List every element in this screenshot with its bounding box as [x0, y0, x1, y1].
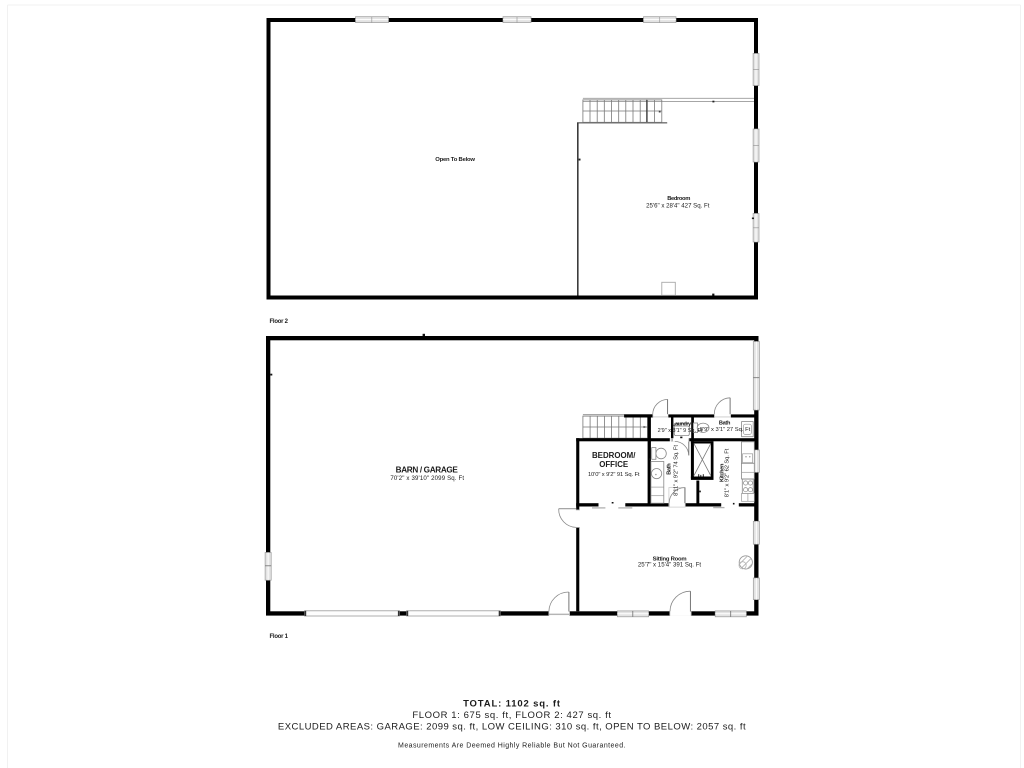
- svg-text:25'6" x 28'4" 427 Sq. Ft: 25'6" x 28'4" 427 Sq. Ft: [646, 203, 710, 210]
- svg-text:BARN / GARAGE: BARN / GARAGE: [396, 466, 459, 475]
- svg-text:70'2" x 39'10" 2099 Sq. Ft: 70'2" x 39'10" 2099 Sq. Ft: [390, 475, 464, 482]
- svg-text:Bath: Bath: [719, 421, 731, 427]
- svg-text:2'9" x 3'1" 9 Sq. Ft: 2'9" x 3'1" 9 Sq. Ft: [658, 428, 703, 434]
- svg-text:10'0" x 9'2" 91 Sq. Ft: 10'0" x 9'2" 91 Sq. Ft: [588, 472, 640, 478]
- svg-text:FLOOR 1: 675 sq. ft, FLOOR 2:: FLOOR 1: 675 sq. ft, FLOOR 2: 427 sq. ft: [412, 710, 611, 721]
- svg-text:Bath: Bath: [667, 463, 673, 475]
- svg-text:8'11" x 9'2" 74 Sq. Ft: 8'11" x 9'2" 74 Sq. Ft: [674, 445, 680, 496]
- svg-text:Laundry: Laundry: [672, 421, 691, 427]
- svg-text:Floor 2: Floor 2: [270, 319, 289, 325]
- svg-text:BEDROOM/: BEDROOM/: [592, 451, 636, 460]
- svg-text:Floor 1: Floor 1: [270, 634, 289, 640]
- svg-text:EXCLUDED AREAS: GARAGE: 2099 s: EXCLUDED AREAS: GARAGE: 2099 sq. ft, LOW…: [278, 721, 746, 732]
- svg-text:Measurements Are Deemed Highly: Measurements Are Deemed Highly Reliable …: [398, 743, 626, 750]
- svg-text:8'1" x 9'2" 62 Sq. Ft: 8'1" x 9'2" 62 Sq. Ft: [725, 448, 731, 497]
- svg-text:8'9" x 3'1" 27 Sq. Ft: 8'9" x 3'1" 27 Sq. Ft: [700, 427, 751, 433]
- svg-text:Bedroom: Bedroom: [667, 196, 690, 202]
- svg-text:OFFICE: OFFICE: [599, 460, 628, 469]
- svg-text:TOTAL: 1102 sq. ft: TOTAL: 1102 sq. ft: [463, 699, 561, 710]
- svg-text:Open To Below: Open To Below: [435, 157, 475, 163]
- svg-text:25'7" x 15'4" 391 Sq. Ft: 25'7" x 15'4" 391 Sq. Ft: [638, 561, 702, 568]
